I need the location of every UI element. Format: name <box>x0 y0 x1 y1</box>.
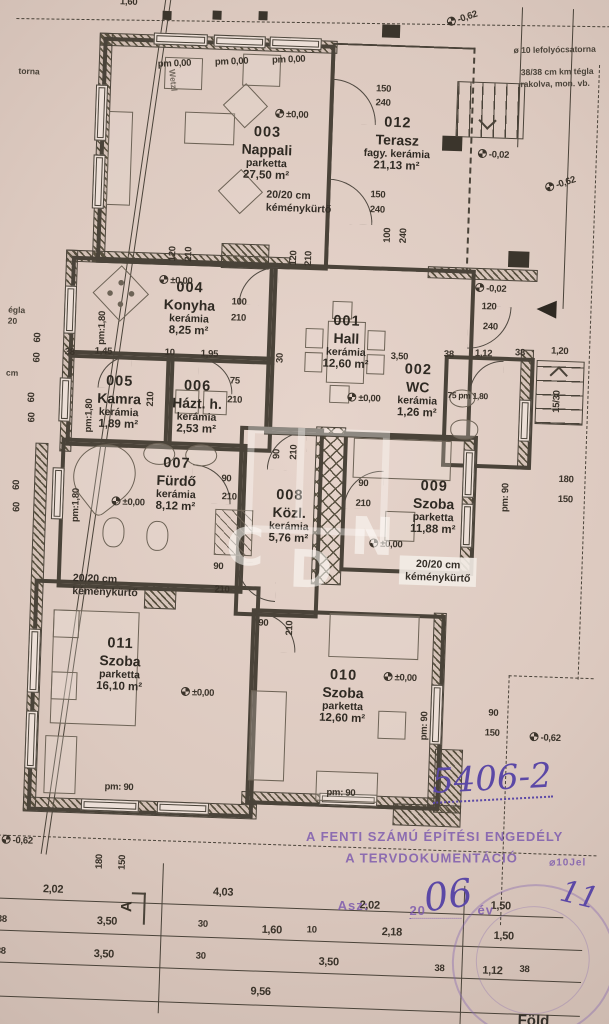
chimney-note-2: 20/20 cm kéménykürtő <box>399 555 477 587</box>
wardrobe-011 <box>43 735 77 794</box>
dimension-label: 180 <box>558 475 573 485</box>
window <box>94 84 108 140</box>
street-label: Wetzl <box>167 69 179 92</box>
dimension-label: 2,18 <box>381 927 402 939</box>
chimney-note-line: kéménykürtő <box>266 201 332 216</box>
fence-post-icon <box>162 11 171 20</box>
level-mark: -0,62 <box>544 174 577 194</box>
dimension-label: 100 <box>383 228 393 243</box>
stamp-line-2: A TERVDOKUMENTÁCIÓ <box>345 851 518 866</box>
dimension-label: 9,56 <box>250 986 271 998</box>
level-mark: ±0,00 <box>159 275 193 287</box>
dimension-label: 1,12 <box>475 349 493 359</box>
level-mark: -0,02 <box>475 283 507 295</box>
witness-line <box>158 863 164 1013</box>
terasz-stairs <box>455 81 525 139</box>
window <box>24 710 38 768</box>
dimension-label: 90 <box>221 474 231 484</box>
window <box>92 154 106 208</box>
dimension-label: 210 <box>214 585 229 595</box>
dimension-label: 1,60 <box>120 0 138 7</box>
dimension-label: 210 <box>184 247 194 262</box>
sofa <box>106 111 133 206</box>
brick-note-2: rakolva, mon. vb. <box>520 78 590 89</box>
room-label-szoba-011: 011 Szoba parketta 16,10 m² <box>73 634 167 695</box>
level-mark: -0,62 <box>1 835 33 847</box>
window <box>51 467 65 519</box>
dimension-label: 180 <box>95 854 105 869</box>
window <box>63 286 77 334</box>
dimension-label: 210 <box>231 313 246 323</box>
room-label-szoba-010: 010 Szoba parketta 12,60 m² <box>296 666 390 727</box>
dimension-label: 1,95 <box>201 349 219 359</box>
dimension-label: pm 0,00 <box>272 55 306 66</box>
stamp-asz: Asz: <box>338 898 369 913</box>
level-mark: ±0,00 <box>275 109 309 121</box>
dimension-label: 1,45 <box>95 347 113 357</box>
dimension-label: pm: 90 <box>326 788 355 799</box>
chimney-note-line: kéménykürtő <box>405 570 471 585</box>
dimension-label: 60 <box>33 332 43 342</box>
dimension-label: 60 <box>12 502 22 512</box>
dimension-label: pm:1,80 <box>97 311 108 345</box>
fence-post-icon <box>212 11 221 20</box>
dimension-label: 30 <box>198 920 208 930</box>
dimension-label: 10 <box>307 925 317 935</box>
dimension-label: pm:1,80 <box>71 488 82 522</box>
edge-fragment: égla <box>8 305 25 316</box>
dimension-label: 60 <box>32 352 42 362</box>
room-label-terasz: 012 Terasz fagy. kerámia 21,13 m² <box>341 113 453 175</box>
window <box>27 628 41 692</box>
dimension-label: 90 <box>213 562 223 572</box>
level-mark: ±0,00 <box>111 496 145 508</box>
room-label-nappali: 003 Nappali parketta 27,50 m² <box>191 122 343 185</box>
window <box>58 377 72 421</box>
chimney-note-3: 20/20 cm kéménykürtő <box>72 572 138 599</box>
drain-note: ø 10 lefolyócsatorna <box>513 44 595 55</box>
dimension-label: pm: 90 <box>500 483 511 512</box>
dimension-label: 210 <box>222 492 237 502</box>
dimension-label: 210 <box>285 620 295 635</box>
dimension-label: 30 <box>275 353 285 363</box>
section-flag-line <box>132 892 146 894</box>
chimney-note-line: kéménykürtő <box>72 585 138 600</box>
dimension-label: 38 <box>0 947 6 957</box>
floor-plan-sheet: 003 Nappali parketta 27,50 m² 012 Terasz… <box>0 0 609 1024</box>
dimension-label: 2,02 <box>43 884 64 896</box>
dimension-label: 30 <box>196 951 206 961</box>
dimension-label: 38 <box>65 348 75 358</box>
brick-note-1: 38/38 cm km tégla <box>521 66 594 77</box>
dimension-label: 100 <box>231 297 246 307</box>
dimension-label: 38 <box>444 350 454 360</box>
boundary-label: torna <box>18 66 40 77</box>
window <box>154 32 208 46</box>
bed-010 <box>328 613 419 660</box>
stamp-tail: ⌀10Jel <box>549 857 586 868</box>
handwritten-permit-number: 5406-2 <box>431 756 553 804</box>
dimension-label: 240 <box>399 228 409 243</box>
dimension-label: 3,50 <box>391 352 409 362</box>
dimension-label: 120 <box>481 302 496 312</box>
window <box>518 399 531 441</box>
level-mark: ±0,00 <box>383 672 417 684</box>
dimension-label: 90 <box>488 709 498 719</box>
dimension-label: pm 0,00 <box>158 59 192 70</box>
window <box>429 685 443 745</box>
dimension-label: 210 <box>227 395 242 405</box>
dimension-label: 4,03 <box>213 887 234 899</box>
level-mark: ±0,00 <box>181 687 215 699</box>
dimension-label: 38 <box>434 964 444 974</box>
couch-010 <box>248 690 287 781</box>
bidet <box>146 521 169 552</box>
chimney-note-1: 20/20 cm kéménykürtő <box>266 188 332 215</box>
section-letter: A <box>118 901 135 912</box>
dimension-label: 210 <box>146 391 156 406</box>
dimension-label: 150 <box>485 728 500 738</box>
window <box>269 37 321 51</box>
watermark-letter: C <box>225 517 265 578</box>
fence-post-icon <box>258 11 267 20</box>
dimension-label: pm 0,00 <box>215 57 249 68</box>
plan-content: 003 Nappali parketta 27,50 m² 012 Terasz… <box>0 0 609 1024</box>
dimension-label: 150 <box>370 190 385 200</box>
roof-overhang-corner <box>509 675 594 679</box>
watermark-letter: D <box>288 540 333 601</box>
dimension-label: 3,50 <box>318 957 339 969</box>
dimension-label: 240 <box>483 322 498 332</box>
dimension-label: 240 <box>375 98 390 108</box>
dimension-label: pm: 90 <box>104 782 133 793</box>
room-label-szoba-009: 009 Szoba parketta 11,88 m² <box>383 477 485 539</box>
dimension-label: 150 <box>376 84 391 94</box>
dimension-label: 1,60 <box>261 925 282 937</box>
level-mark: -0,62 <box>529 732 561 744</box>
dimension-label: pm:1,80 <box>84 398 95 432</box>
section-flag-line <box>143 893 146 925</box>
edge-fragment: cm <box>6 368 19 378</box>
level-mark: ±0,00 <box>347 392 381 404</box>
dimension-label: 150 <box>118 855 128 870</box>
dimension-label: pm: 90 <box>419 711 430 740</box>
bottom-text-fragment: Föld <box>517 1012 549 1024</box>
dimension-label: 60 <box>27 412 37 422</box>
site-boundary-top <box>16 18 609 28</box>
level-mark: -0,02 <box>478 149 510 161</box>
dimension-label: 75 pm 1,80 <box>447 391 488 401</box>
dimension-label: 38 <box>0 915 7 925</box>
dimension-label: 60 <box>12 480 22 490</box>
dimension-label: 90 <box>258 618 268 628</box>
dimension-label: 75 <box>230 376 240 386</box>
stamp-line-1: A FENTI SZÁMÚ ÉPÍTÉSI ENGEDÉLY <box>306 829 563 844</box>
entrance-arrow-icon <box>536 300 557 319</box>
watermark-letter: N <box>349 507 395 568</box>
dimension-label: 210 <box>304 251 314 266</box>
window <box>81 798 139 812</box>
dimension-label: 60 <box>27 392 37 402</box>
dimension-label: 38 <box>515 348 525 358</box>
dimension-label: 150 <box>558 495 573 505</box>
gate-post-icon <box>382 24 400 38</box>
dimension-label: 3,50 <box>94 949 115 961</box>
section-marker: A <box>123 892 154 925</box>
room-label-konyha: 004 Konyha kerámia 8,25 m² <box>123 278 255 341</box>
dimension-label: 3,50 <box>97 916 118 928</box>
terasz-column-icon <box>508 251 530 268</box>
toilet <box>450 419 479 440</box>
window <box>157 801 209 815</box>
dimension-label: 240 <box>370 205 385 215</box>
dimension-label: 10 <box>165 348 175 358</box>
dimension-label: 15/30 <box>552 390 562 413</box>
window <box>213 35 265 49</box>
dimension-label: 120 <box>168 246 178 261</box>
dimension-label: 1,20 <box>551 347 569 357</box>
dimension-label: 120 <box>289 250 299 265</box>
edge-fragment: 20 <box>8 316 18 326</box>
handwritten-year: 06 <box>421 870 475 920</box>
toilet <box>102 517 125 548</box>
